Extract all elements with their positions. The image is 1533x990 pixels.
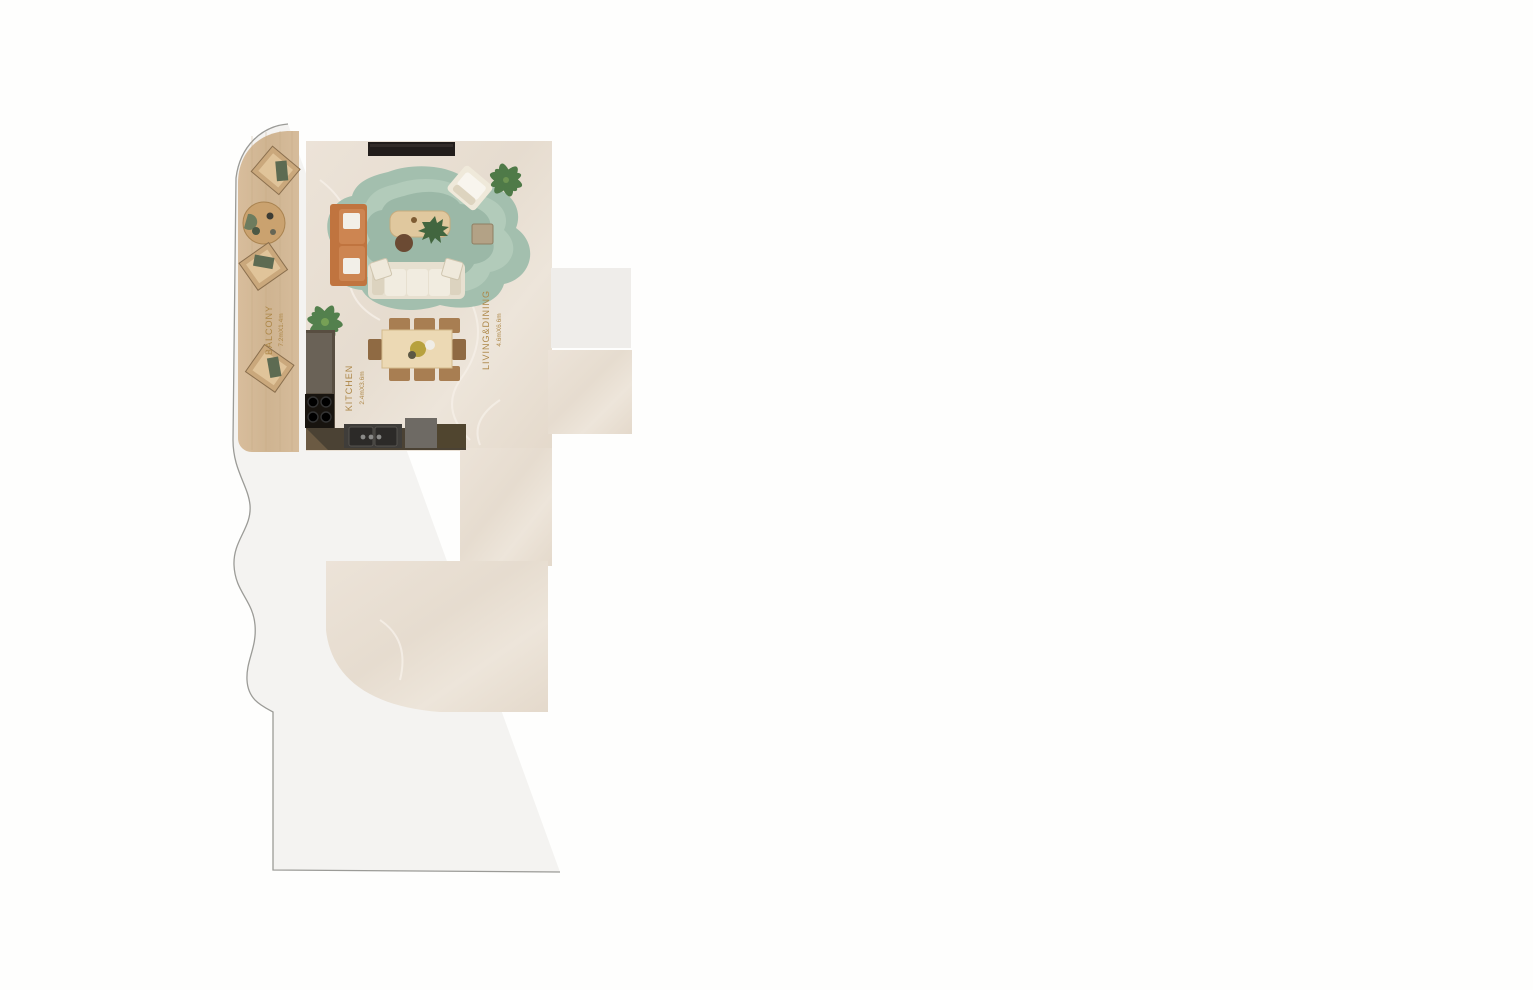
svg-text:LIVING&DINING: LIVING&DINING xyxy=(481,290,491,370)
svg-text:BALCONY: BALCONY xyxy=(264,305,274,355)
svg-text:4.6mX6.6m: 4.6mX6.6m xyxy=(496,313,503,346)
svg-text:KITCHEN: KITCHEN xyxy=(344,365,354,412)
svg-text:2.4mX3.6m: 2.4mX3.6m xyxy=(359,371,366,404)
svg-text:7.2mX1.4m: 7.2mX1.4m xyxy=(278,313,285,346)
